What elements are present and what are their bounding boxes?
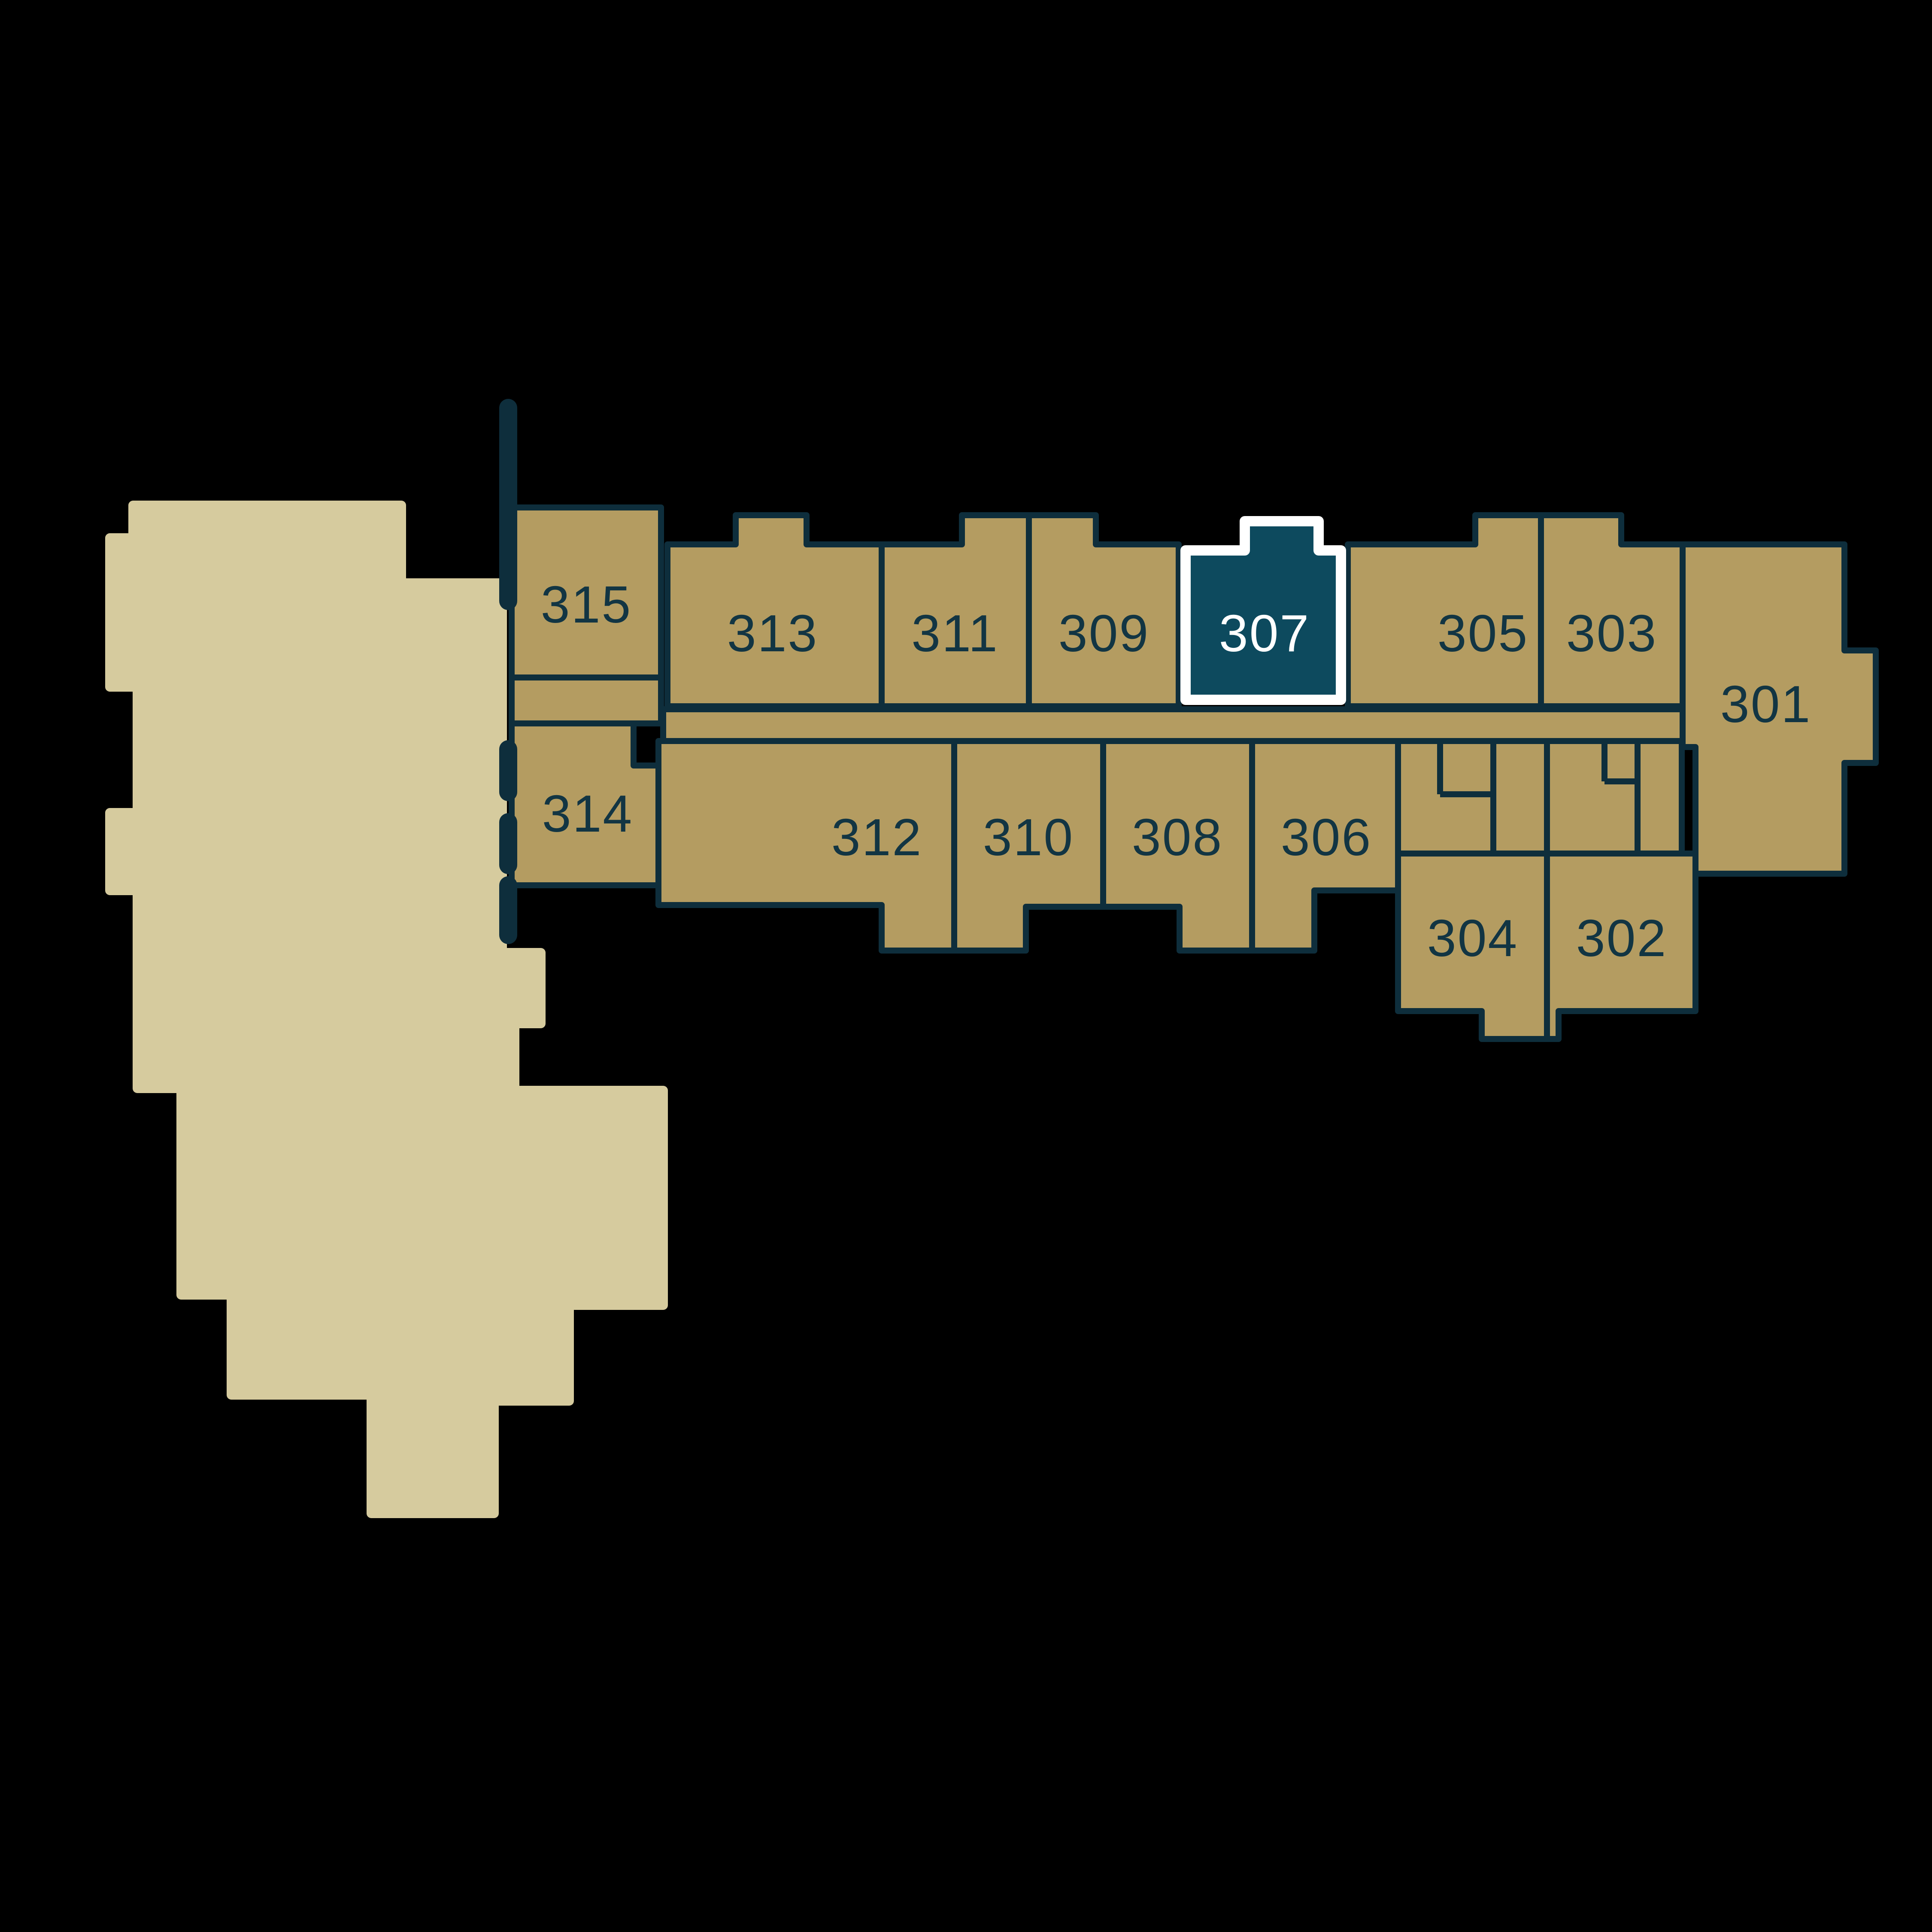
unit-307[interactable] — [1186, 521, 1341, 700]
unit-312[interactable] — [658, 741, 954, 951]
unit-314[interactable] — [512, 723, 658, 885]
unit-308[interactable] — [1103, 741, 1252, 951]
unit-302[interactable] — [1547, 854, 1695, 1039]
unit-306[interactable] — [1252, 741, 1398, 951]
unit-305[interactable] — [1348, 515, 1541, 706]
unit-309[interactable] — [1029, 515, 1179, 706]
unit-315[interactable] — [512, 507, 661, 677]
unit-310[interactable] — [954, 741, 1103, 951]
corridor-west — [512, 677, 661, 723]
unit-303[interactable] — [1541, 515, 1683, 706]
unit-311[interactable] — [882, 515, 1029, 706]
floorplan-canvas: 3013023033043053063073083093103113123133… — [0, 0, 1932, 1932]
unit-313[interactable] — [667, 515, 882, 706]
floorplan-svg: 3013023033043053063073083093103113123133… — [0, 0, 1932, 1932]
unit-304[interactable] — [1398, 854, 1547, 1039]
unit-301[interactable] — [1683, 544, 1876, 874]
